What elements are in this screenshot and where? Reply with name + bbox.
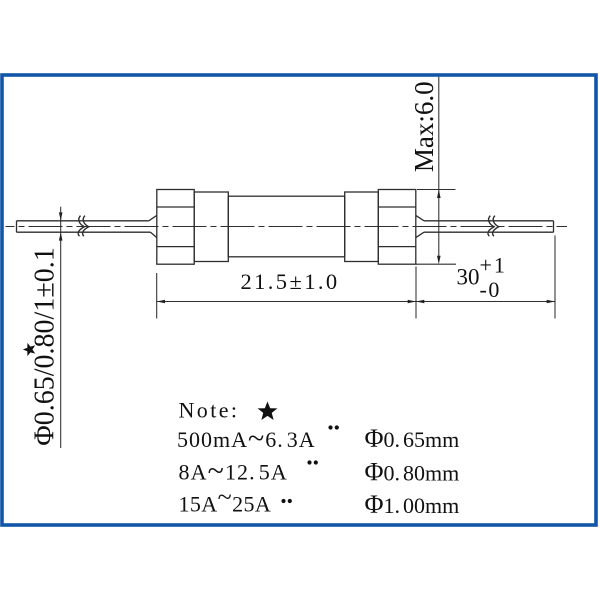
svg-text:Φ1.00mm: Φ1.00mm	[365, 490, 460, 519]
svg-text:Φ0.65mm: Φ0.65mm	[365, 424, 460, 453]
svg-text:Φ0.80mm: Φ0.80mm	[365, 458, 460, 487]
svg-text:-0: -0	[480, 277, 501, 302]
svg-text:8A~12.5A: 8A~12.5A	[179, 455, 288, 488]
svg-text:Note:: Note:	[179, 398, 240, 423]
svg-text:21.5±1.0: 21.5±1.0	[240, 269, 339, 294]
svg-text:Max:6.0: Max:6.0	[409, 81, 439, 172]
svg-text:500mA~6.3A: 500mA~6.3A	[177, 422, 316, 455]
svg-text:+1: +1	[480, 253, 507, 278]
svg-text:30: 30	[457, 265, 480, 290]
